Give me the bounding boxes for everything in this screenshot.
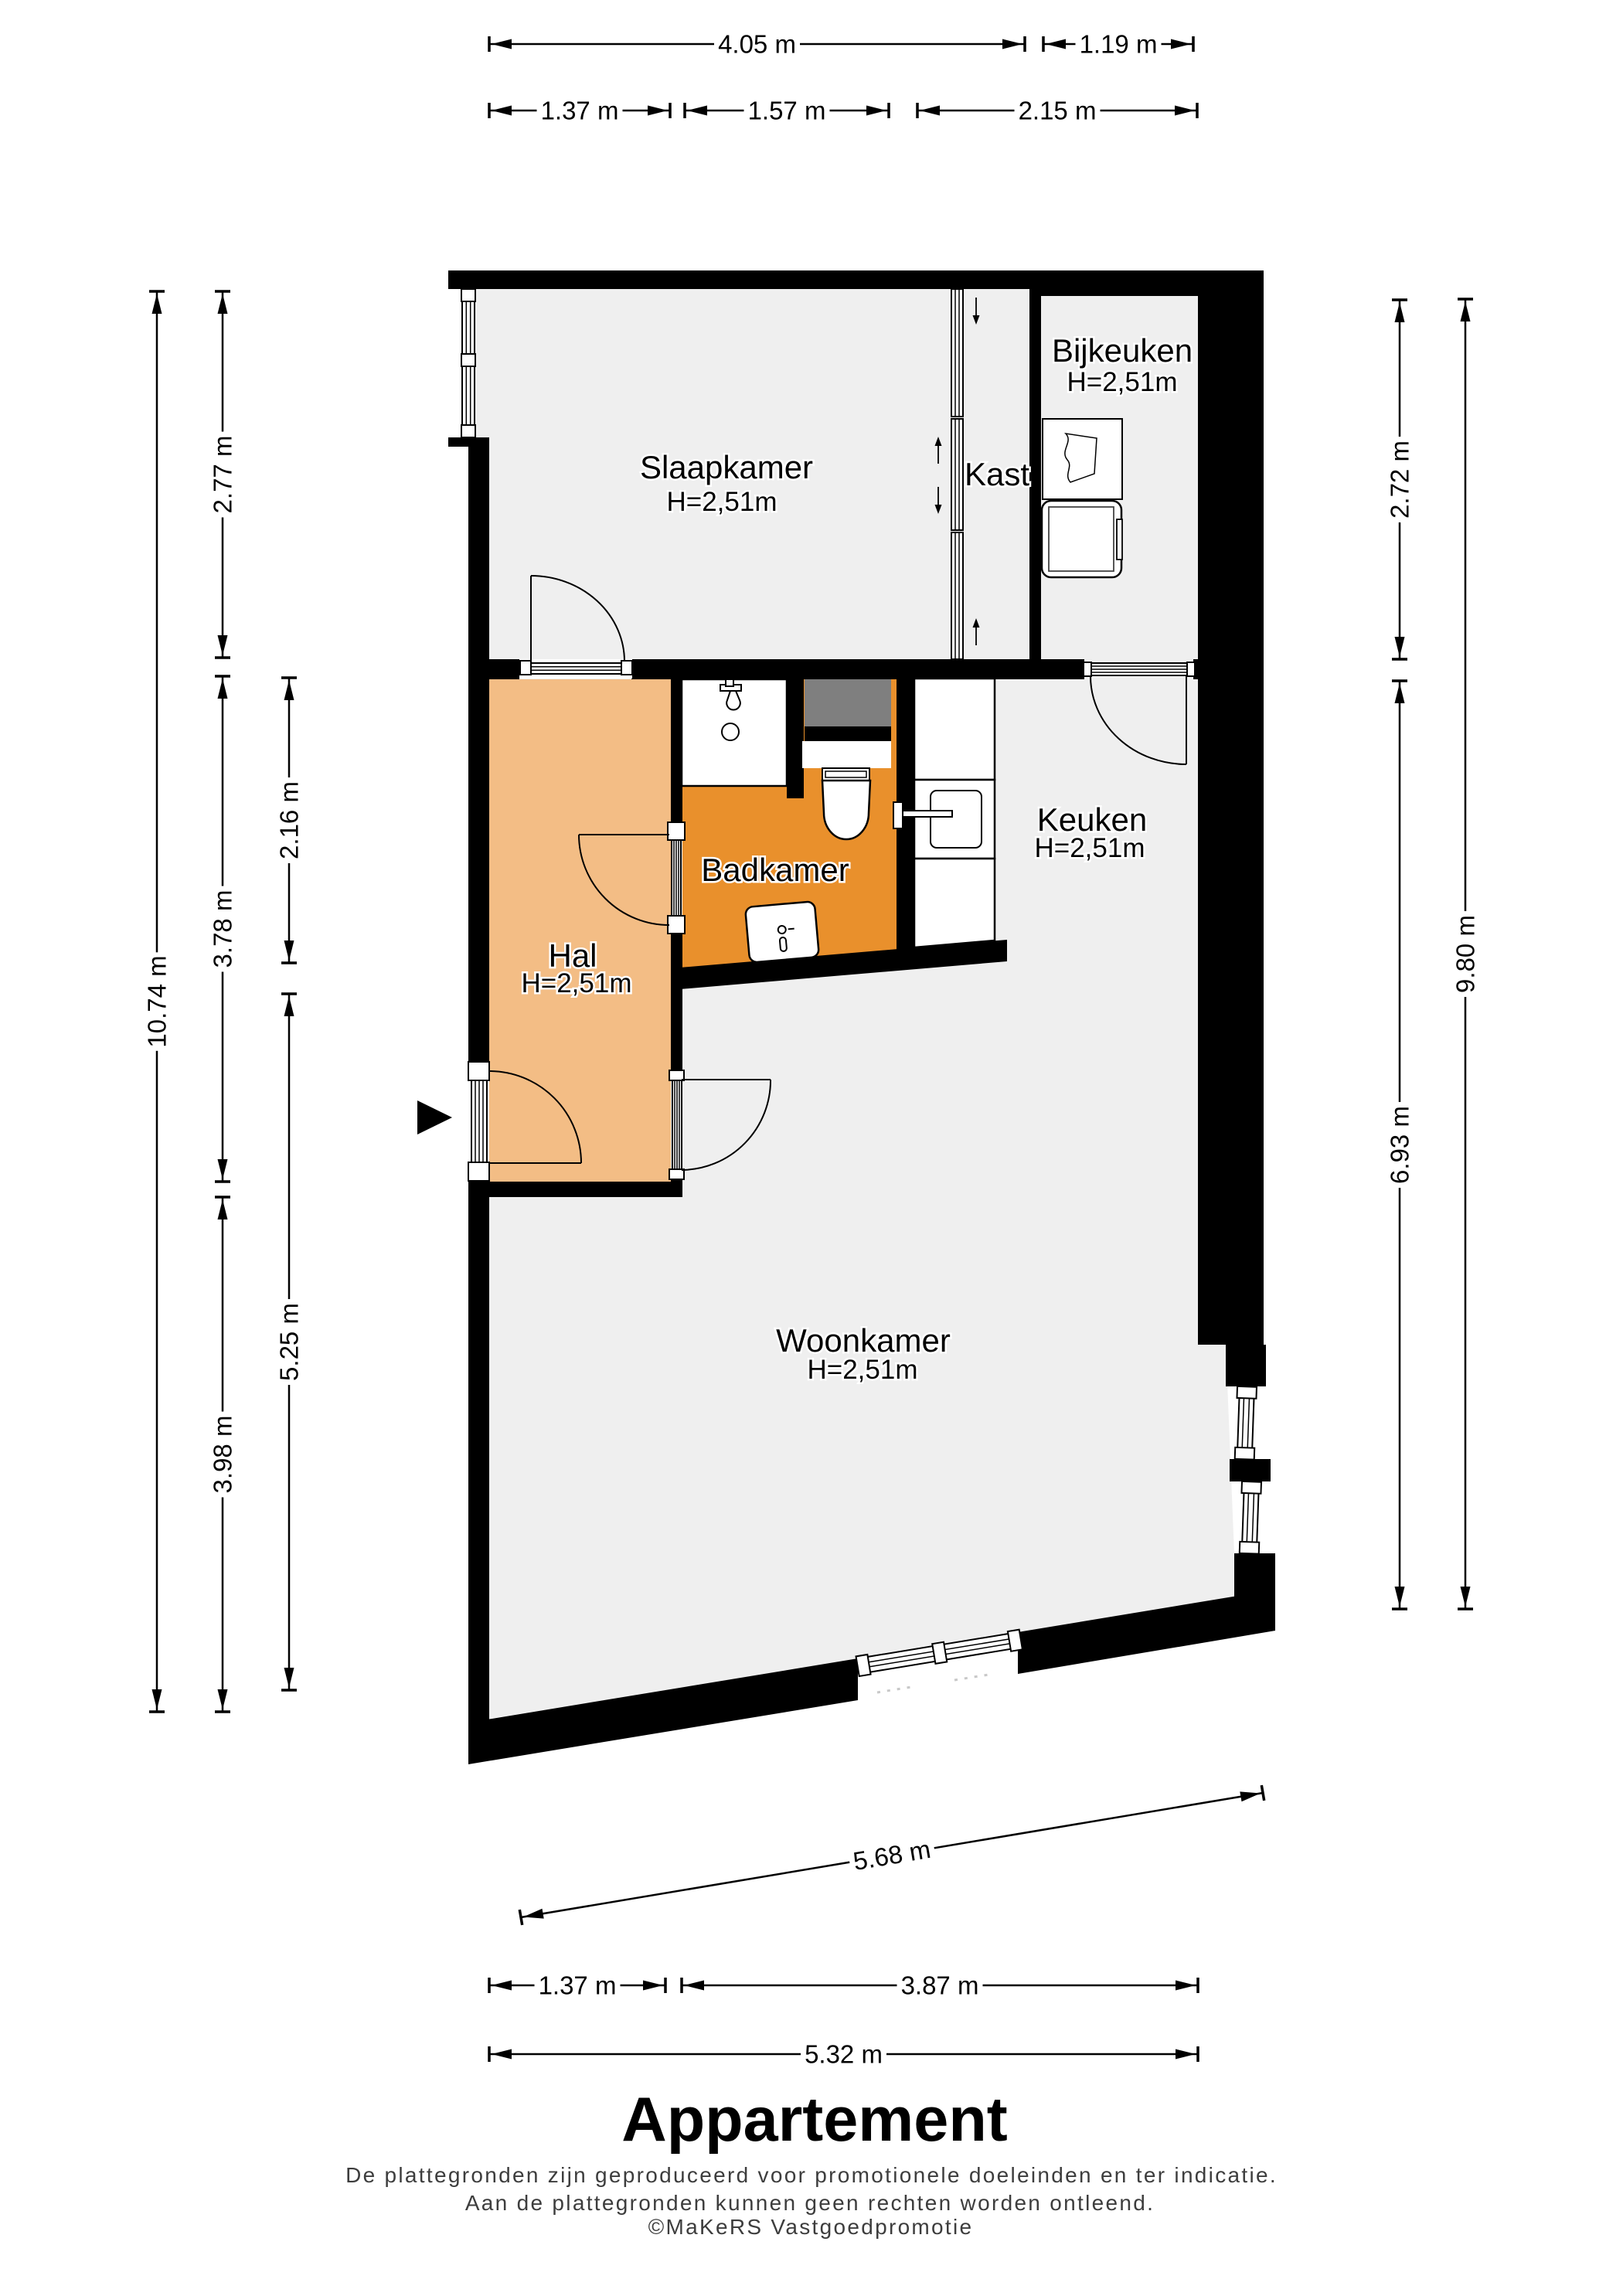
svg-text:3.78 m: 3.78 m bbox=[209, 890, 237, 968]
svg-text:Kast: Kast bbox=[965, 456, 1029, 492]
svg-text:©MaKeRS Vastgoedpromotie: ©MaKeRS Vastgoedpromotie bbox=[648, 2215, 974, 2239]
svg-text:2.16 m: 2.16 m bbox=[275, 781, 304, 859]
svg-text:1.37 m: 1.37 m bbox=[541, 97, 619, 125]
svg-text:Bijkeuken: Bijkeuken bbox=[1052, 332, 1193, 369]
svg-text:5.25 m: 5.25 m bbox=[275, 1303, 304, 1381]
svg-text:De plattegronden zijn geproduc: De plattegronden zijn geproduceerd voor … bbox=[345, 2163, 1278, 2187]
svg-text:2.77 m: 2.77 m bbox=[209, 436, 237, 514]
svg-text:9.80 m: 9.80 m bbox=[1451, 915, 1480, 993]
svg-text:4.05 m: 4.05 m bbox=[718, 30, 796, 59]
svg-text:5.32 m: 5.32 m bbox=[805, 2040, 883, 2069]
svg-text:1.57 m: 1.57 m bbox=[748, 97, 826, 125]
svg-text:Aan de plattegronden kunnen ge: Aan de plattegronden kunnen geen rechten… bbox=[465, 2191, 1155, 2215]
svg-text:H=2,51m: H=2,51m bbox=[522, 968, 632, 998]
svg-text:Appartement: Appartement bbox=[621, 2085, 1008, 2155]
svg-text:Slaapkamer: Slaapkamer bbox=[640, 449, 813, 485]
svg-text:3.87 m: 3.87 m bbox=[901, 1971, 979, 2000]
svg-text:2.15 m: 2.15 m bbox=[1019, 97, 1097, 125]
svg-text:1.19 m: 1.19 m bbox=[1080, 30, 1158, 59]
svg-text:Badkamer: Badkamer bbox=[701, 852, 849, 888]
svg-text:H=2,51m: H=2,51m bbox=[667, 487, 777, 517]
svg-text:H=2,51m: H=2,51m bbox=[1035, 833, 1145, 863]
svg-text:1.37 m: 1.37 m bbox=[539, 1971, 617, 2000]
svg-text:H=2,51m: H=2,51m bbox=[808, 1355, 918, 1385]
svg-text:2.72 m: 2.72 m bbox=[1386, 440, 1414, 519]
svg-text:10.74 m: 10.74 m bbox=[143, 955, 172, 1047]
svg-text:6.93 m: 6.93 m bbox=[1386, 1106, 1414, 1184]
svg-text:Woonkamer: Woonkamer bbox=[776, 1322, 951, 1359]
svg-text:Keuken: Keuken bbox=[1037, 801, 1147, 838]
svg-text:H=2,51m: H=2,51m bbox=[1067, 367, 1178, 397]
svg-text:3.98 m: 3.98 m bbox=[209, 1416, 237, 1494]
